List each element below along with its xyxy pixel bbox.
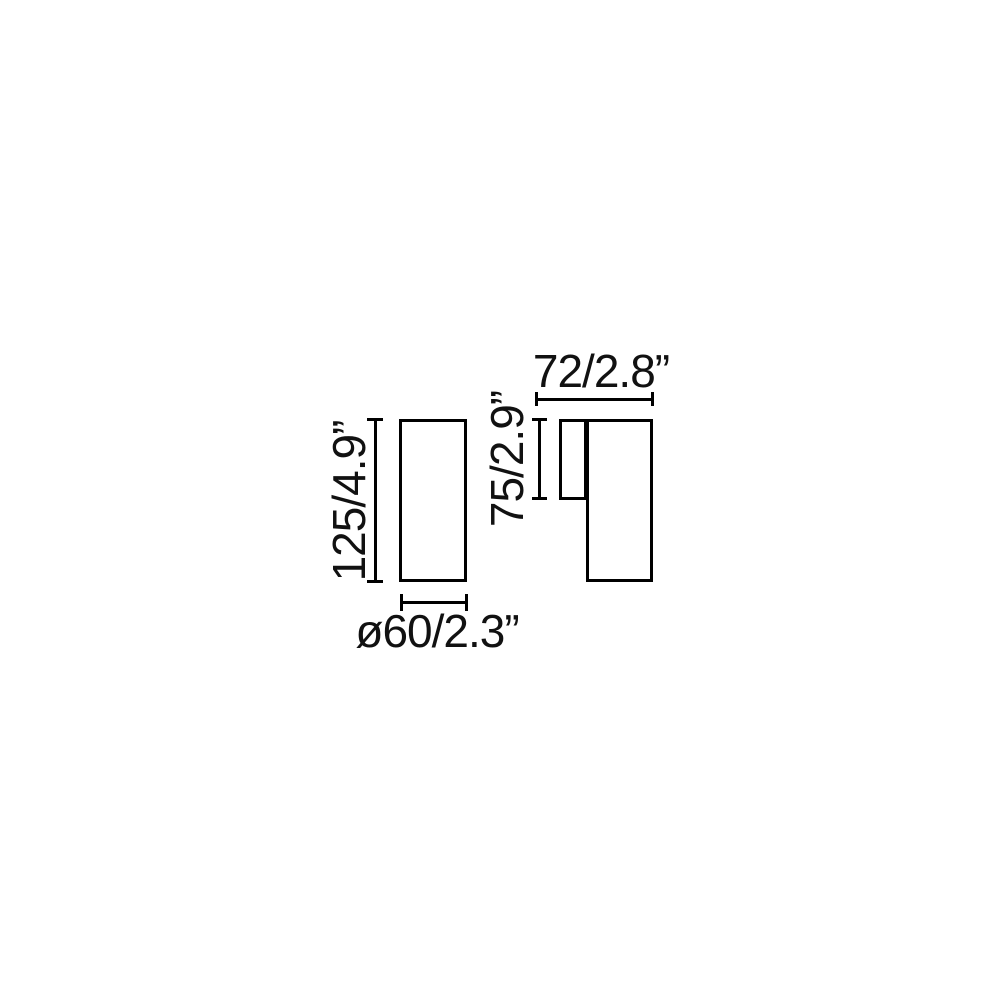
side-height-dim-tick-top: [532, 418, 547, 421]
side-height-dim-tick-bottom: [532, 497, 547, 500]
front-diameter-label: ø60/2.3”: [355, 608, 518, 654]
dimension-diagram: 125/4.9” ø60/2.3” 72/2.8” 75/2.9”: [0, 0, 1000, 1000]
side-depth-dim-line: [536, 398, 654, 401]
front-diameter-dim-line: [401, 601, 468, 604]
side-view-bracket-outline: [559, 419, 587, 500]
side-view-body-outline: [586, 419, 653, 582]
side-depth-label: 72/2.8”: [533, 348, 669, 394]
front-view-outline: [399, 419, 467, 582]
side-height-label: 75/2.9”: [484, 391, 530, 527]
side-height-dim-line: [538, 420, 541, 500]
front-height-label: 125/4.9”: [326, 421, 372, 582]
